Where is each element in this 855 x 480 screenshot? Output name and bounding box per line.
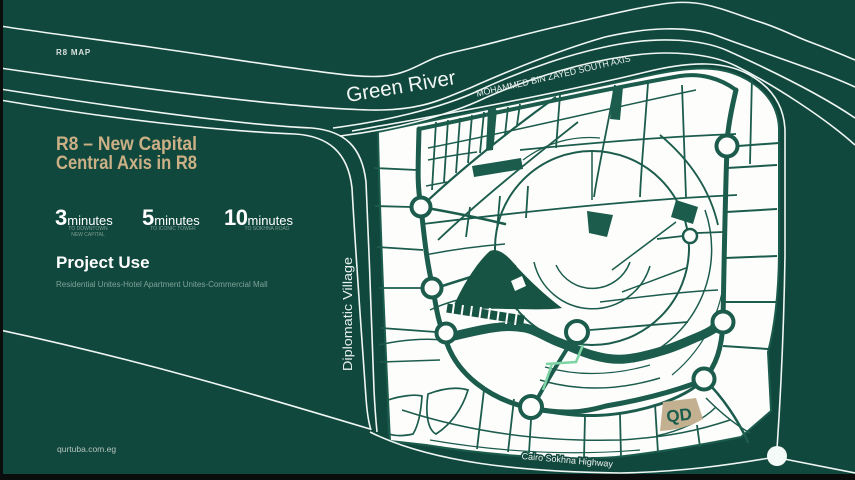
svg-text:NEW CAPITAL: NEW CAPITAL bbox=[71, 232, 105, 238]
svg-text:TO SOKHNA ROAD: TO SOKHNA ROAD bbox=[245, 226, 290, 232]
svg-text:TO ICONIC TOWER: TO ICONIC TOWER bbox=[150, 226, 196, 232]
svg-text:Central Axis in R8: Central Axis in R8 bbox=[56, 152, 197, 174]
svg-text:Project Use: Project Use bbox=[56, 253, 150, 272]
svg-text:R8 MAP: R8 MAP bbox=[56, 48, 91, 57]
svg-text:QD: QD bbox=[665, 405, 693, 427]
svg-text:qurtuba.com.eg: qurtuba.com.eg bbox=[57, 444, 116, 454]
svg-text:Diplomatic Village: Diplomatic Village bbox=[340, 257, 355, 371]
svg-text:Residential Unites-Hotel Apart: Residential Unites-Hotel Apartment Unite… bbox=[56, 280, 268, 289]
